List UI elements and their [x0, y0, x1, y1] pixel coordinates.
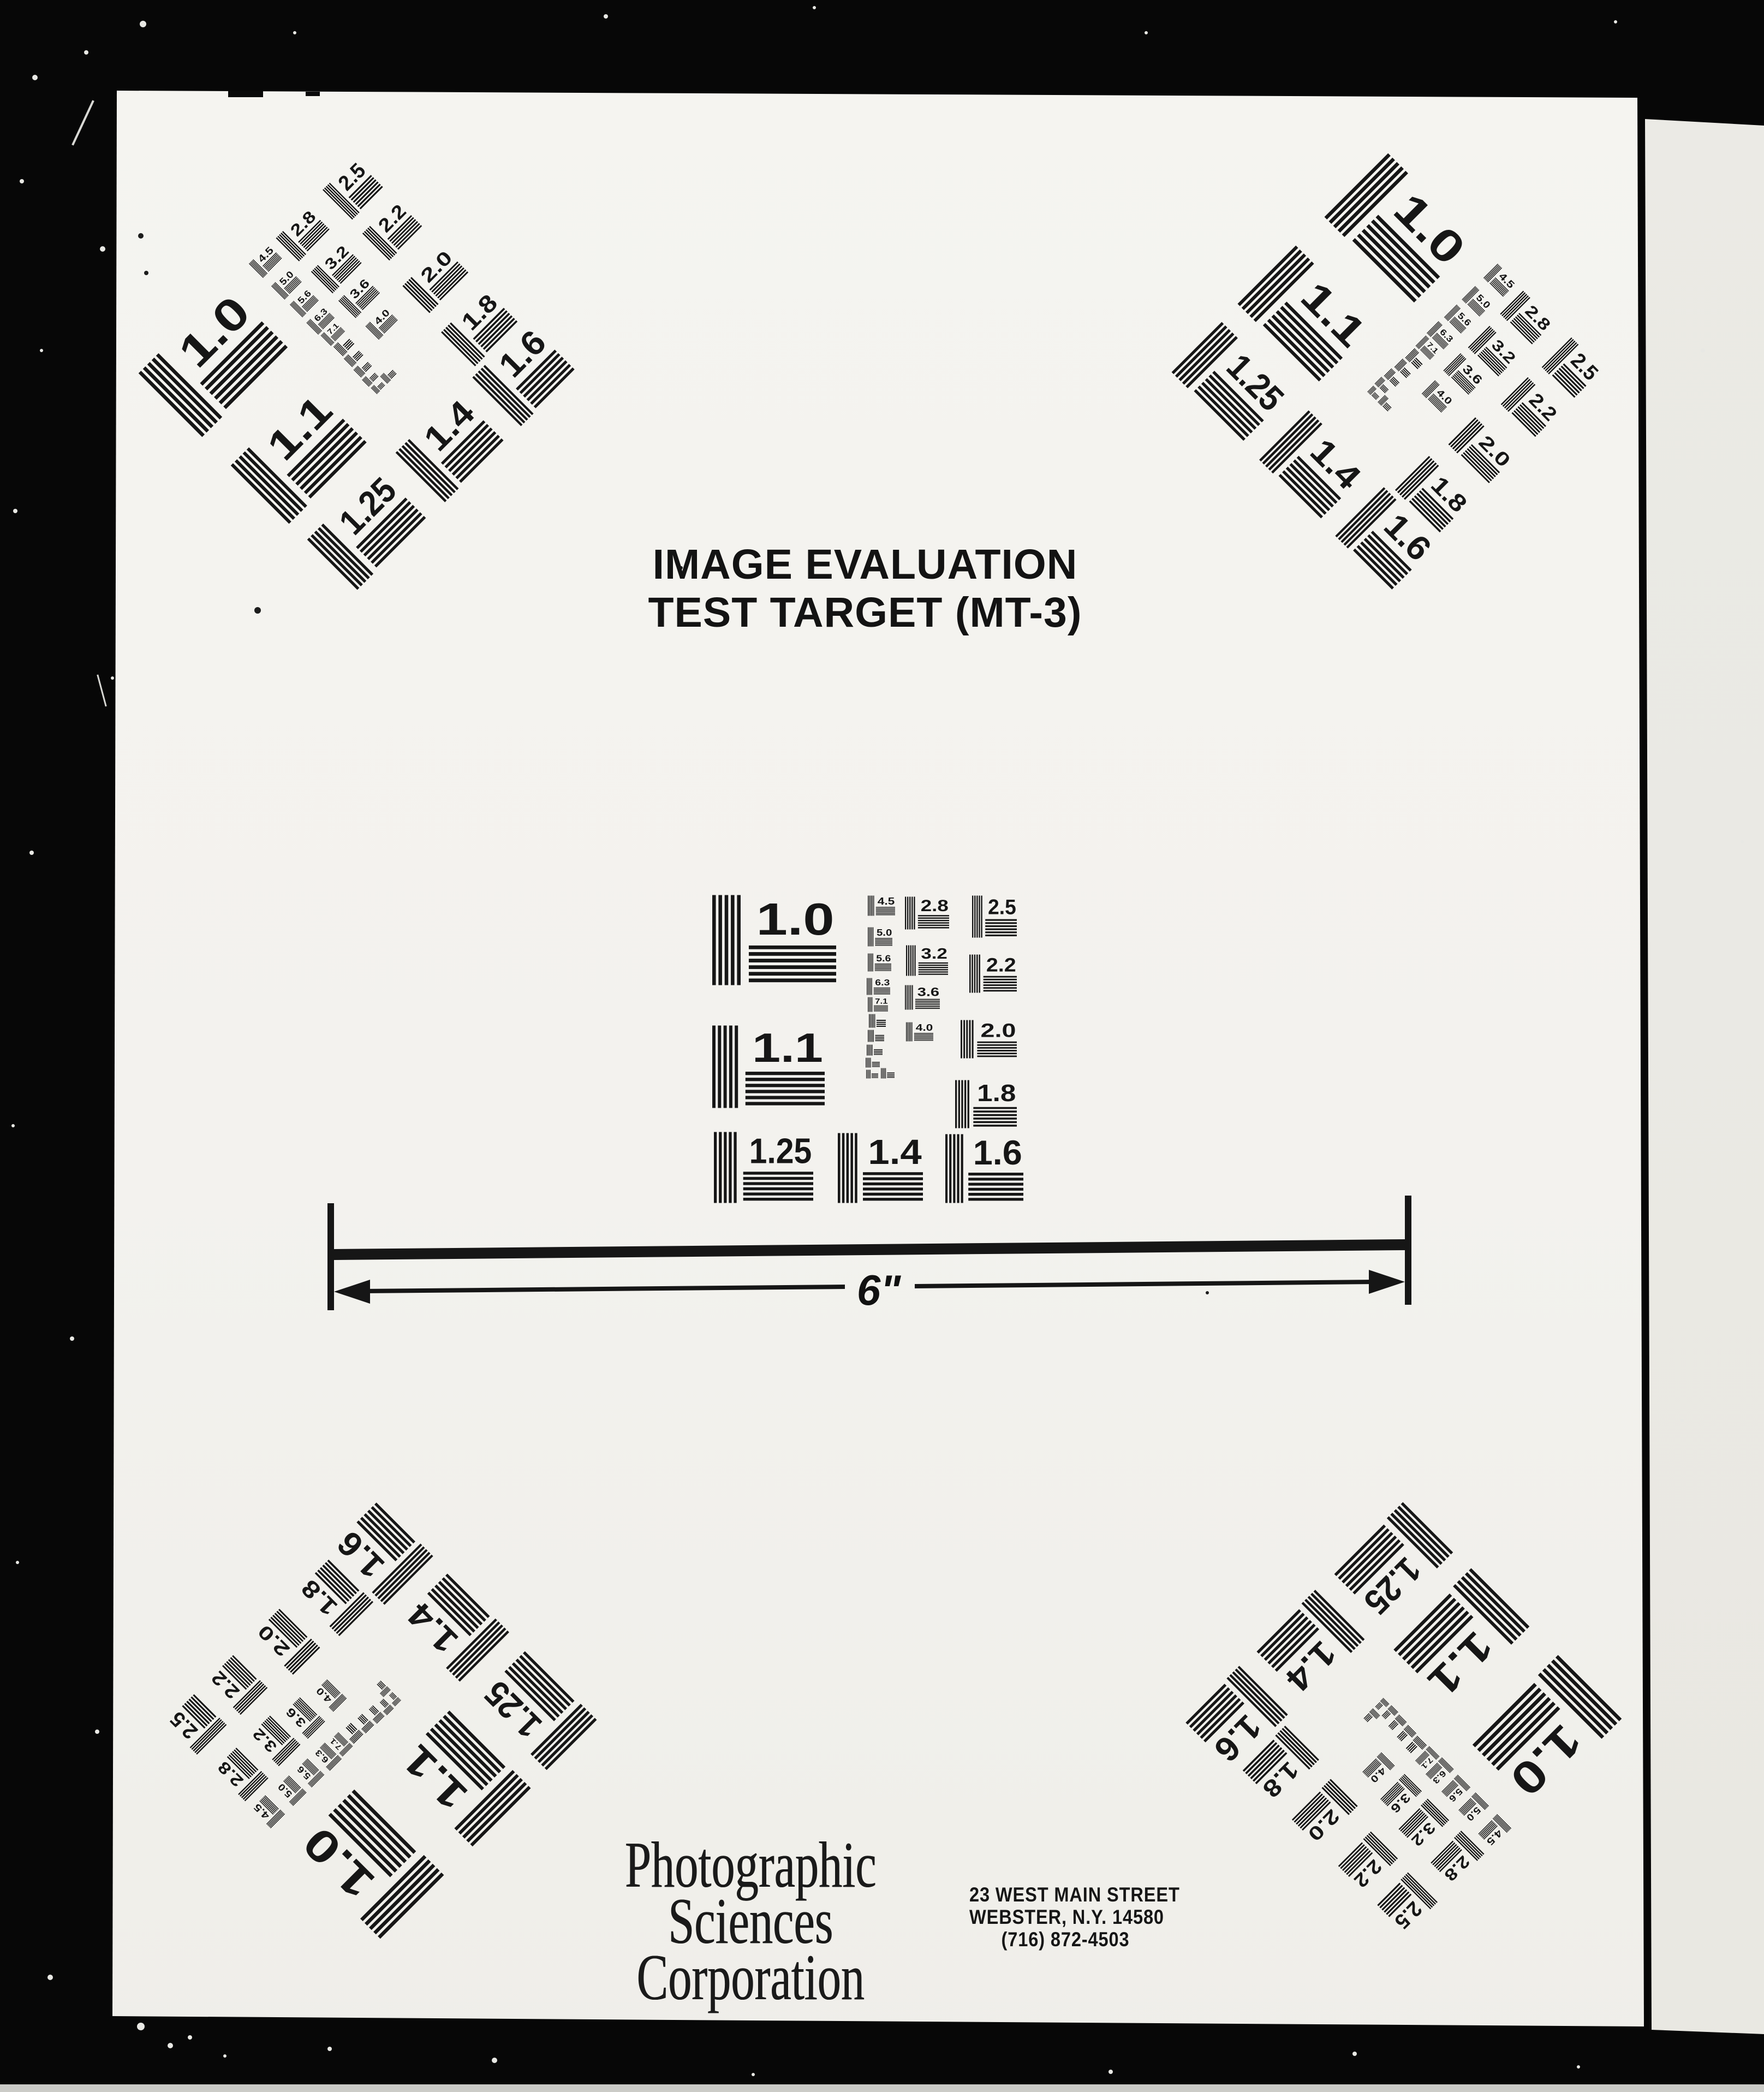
svg-text:1.25: 1.25 — [476, 1673, 549, 1746]
svg-text:1.1: 1.1 — [1420, 1623, 1502, 1705]
svg-text:5.0: 5.0 — [276, 1781, 294, 1800]
svg-text:2.0: 2.0 — [981, 1020, 1016, 1041]
svg-text:1.0: 1.0 — [1500, 1715, 1591, 1805]
svg-text:7.1: 7.1 — [875, 997, 888, 1005]
svg-text:2.8: 2.8 — [214, 1758, 247, 1790]
svg-text:3.2: 3.2 — [249, 1725, 280, 1756]
svg-text:3.2: 3.2 — [1408, 1819, 1439, 1850]
target-title-line2: TEST TARGET (MT-3) — [648, 589, 1082, 636]
svg-text:1.8: 1.8 — [296, 1574, 343, 1621]
microfilm-scan-frame: 1.01.11.251.41.61.82.02.22.52.83.23.64.0… — [0, 0, 1764, 2092]
svg-text:4.5: 4.5 — [252, 1802, 272, 1822]
svg-text:1.8: 1.8 — [456, 289, 503, 336]
svg-text:4.5: 4.5 — [878, 895, 895, 907]
svg-text:1.0: 1.0 — [294, 1817, 384, 1908]
svg-text:5.6: 5.6 — [1456, 311, 1473, 328]
svg-text:1.0: 1.0 — [756, 894, 835, 944]
svg-text:1.25: 1.25 — [1356, 1550, 1429, 1623]
target-title: IMAGE EVALUATIONTEST TARGET (MT-3) — [538, 540, 1193, 637]
test-pattern-top-right: 1.01.11.251.41.61.82.02.22.52.83.23.64.0… — [1170, 153, 1608, 591]
svg-text:1.1: 1.1 — [394, 1737, 476, 1819]
test-pattern-top-left: 1.01.11.251.41.61.82.02.22.52.83.23.64.0… — [138, 153, 576, 591]
scale-bar-length-label: 6" — [841, 1265, 917, 1315]
svg-text:2.8: 2.8 — [1441, 1852, 1473, 1884]
svg-text:1.25: 1.25 — [331, 469, 404, 542]
svg-text:5.0: 5.0 — [1474, 292, 1493, 311]
svg-text:5.0: 5.0 — [1464, 1805, 1483, 1823]
svg-text:3.6: 3.6 — [917, 985, 939, 999]
svg-text:2.2: 2.2 — [986, 954, 1016, 976]
svg-text:4.5: 4.5 — [255, 245, 276, 265]
company-name: PhotographicSciencesCorporation — [515, 1837, 986, 2005]
svg-text:2.8: 2.8 — [921, 897, 949, 915]
svg-text:2.8: 2.8 — [287, 207, 319, 240]
svg-text:4.0: 4.0 — [916, 1022, 933, 1033]
svg-text:1.0: 1.0 — [169, 287, 260, 377]
svg-text:1.8: 1.8 — [977, 1080, 1016, 1107]
svg-text:3.2: 3.2 — [1488, 336, 1519, 367]
svg-text:5.6: 5.6 — [296, 288, 313, 306]
svg-text:6.3: 6.3 — [875, 978, 890, 988]
svg-text:2.5: 2.5 — [988, 895, 1016, 919]
page-edge-marks — [228, 91, 320, 97]
svg-text:1.4: 1.4 — [868, 1132, 922, 1172]
address-city: WEBSTER, N.Y. 14580 — [969, 1906, 1164, 1928]
svg-text:1.8: 1.8 — [1426, 471, 1472, 518]
svg-text:5.0: 5.0 — [877, 927, 892, 938]
test-pattern-center: 1.01.11.251.41.61.82.02.22.52.83.23.64.0… — [712, 894, 1023, 1203]
company-address: 23 WEST MAIN STREETWEBSTER, N.Y. 14580(7… — [969, 1883, 1161, 1951]
svg-text:1.1: 1.1 — [258, 387, 341, 469]
svg-text:4.5: 4.5 — [1485, 1827, 1505, 1847]
svg-text:5.6: 5.6 — [1447, 1786, 1464, 1804]
svg-text:3.2: 3.2 — [921, 945, 947, 962]
svg-text:1.8: 1.8 — [1258, 1756, 1304, 1803]
address-phone: (716) 872-4503 — [1002, 1928, 1130, 1951]
address-street: 23 WEST MAIN STREET — [969, 1883, 1180, 1906]
svg-text:5.0: 5.0 — [277, 269, 296, 287]
target-title-line1: IMAGE EVALUATION — [653, 541, 1078, 588]
svg-text:1.1: 1.1 — [752, 1025, 823, 1071]
svg-text:3.2: 3.2 — [321, 242, 352, 273]
test-target-artwork: 1.01.11.251.41.61.82.02.22.52.83.23.64.0… — [0, 0, 1764, 2092]
svg-text:1.1: 1.1 — [1292, 273, 1375, 355]
svg-text:4.5: 4.5 — [1497, 270, 1517, 290]
company-name-line3: Corporation — [636, 1941, 865, 2013]
svg-text:1.6: 1.6 — [973, 1134, 1022, 1172]
svg-text:2.8: 2.8 — [1521, 302, 1553, 334]
svg-text:1.25: 1.25 — [1219, 346, 1292, 419]
svg-text:1.0: 1.0 — [1384, 184, 1475, 275]
svg-text:5.6: 5.6 — [295, 1764, 313, 1781]
svg-text:1.25: 1.25 — [749, 1131, 812, 1171]
svg-text:5.6: 5.6 — [876, 954, 891, 964]
test-pattern-bottom-right: 1.01.11.251.41.61.82.02.22.52.83.23.64.0… — [1184, 1501, 1622, 1939]
